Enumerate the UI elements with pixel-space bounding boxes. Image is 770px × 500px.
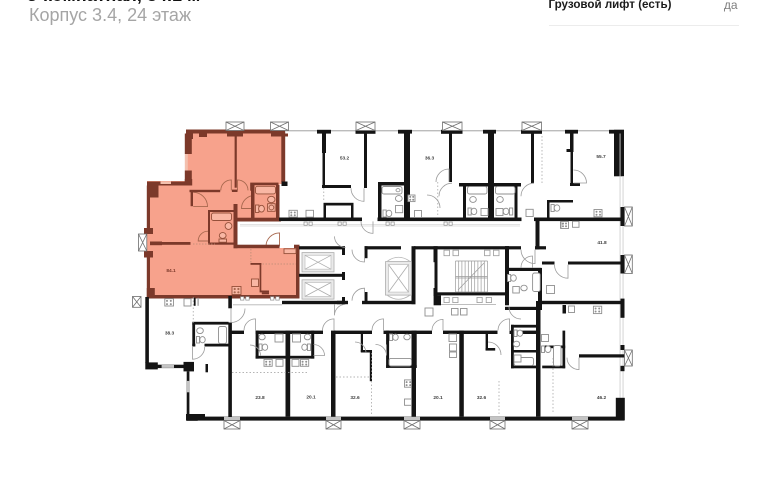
- svg-text:84.1: 84.1: [166, 268, 176, 274]
- svg-text:20.1: 20.1: [306, 395, 316, 401]
- svg-text:55.7: 55.7: [596, 154, 606, 160]
- svg-text:46.2: 46.2: [597, 395, 607, 401]
- svg-text:32.6: 32.6: [477, 395, 487, 401]
- svg-text:36.3: 36.3: [425, 156, 435, 162]
- svg-text:41.8: 41.8: [597, 240, 607, 246]
- svg-text:38.3: 38.3: [165, 331, 175, 337]
- svg-text:53.2: 53.2: [340, 156, 350, 162]
- svg-text:20.1: 20.1: [433, 395, 443, 401]
- svg-text:23.8: 23.8: [255, 395, 265, 401]
- svg-text:32.6: 32.6: [350, 395, 360, 401]
